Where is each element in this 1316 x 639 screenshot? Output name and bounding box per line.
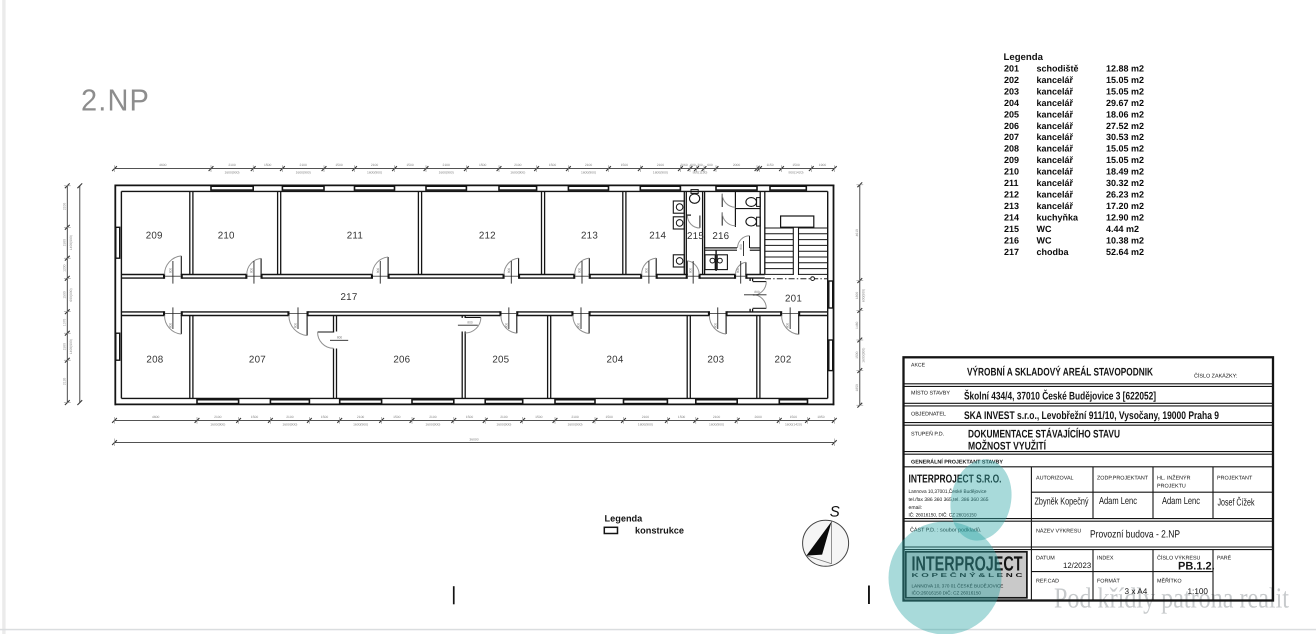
svg-text:1600(900): 1600(900) — [581, 171, 596, 175]
svg-text:2060: 2060 — [680, 163, 688, 167]
svg-text:203: 203 — [707, 354, 724, 365]
svg-text:1460: 1460 — [855, 321, 859, 329]
svg-text:204: 204 — [1004, 98, 1019, 108]
svg-text:Josef Čížek: Josef Čížek — [1218, 497, 1256, 509]
svg-text:1500: 1500 — [790, 415, 798, 419]
svg-text:1500: 1500 — [393, 415, 401, 419]
svg-text:216: 216 — [1004, 236, 1019, 246]
svg-text:1600(900): 1600(900) — [210, 422, 225, 426]
svg-text:WC: WC — [1037, 224, 1052, 234]
svg-text:217: 217 — [341, 292, 358, 303]
svg-text:1500: 1500 — [549, 163, 557, 167]
svg-text:800: 800 — [578, 268, 582, 274]
svg-text:FORMÁT: FORMÁT — [1097, 578, 1120, 585]
svg-text:201: 201 — [785, 294, 802, 305]
svg-text:2.NP: 2.NP — [81, 84, 150, 118]
svg-text:202: 202 — [1004, 75, 1019, 85]
svg-text:1500: 1500 — [264, 163, 272, 167]
svg-text:1850: 1850 — [855, 384, 859, 392]
svg-text:30.53 m2: 30.53 m2 — [1106, 132, 1144, 142]
svg-text:1800: 1800 — [855, 292, 859, 300]
svg-text:kancelář: kancelář — [1037, 178, 1074, 188]
svg-text:800: 800 — [504, 323, 508, 329]
svg-text:SKA INVEST s.r.o., Levobřežní: SKA INVEST s.r.o., Levobřežní 911/10, Vy… — [964, 410, 1219, 422]
svg-text:211: 211 — [1004, 178, 1019, 188]
svg-text:15.05 m2: 15.05 m2 — [1106, 155, 1144, 165]
svg-text:2100: 2100 — [214, 415, 222, 419]
svg-text:214: 214 — [649, 230, 666, 241]
svg-text:4600: 4600 — [152, 415, 160, 419]
svg-text:204: 204 — [607, 354, 624, 365]
svg-text:600(900): 600(900) — [861, 289, 865, 302]
svg-text:1600(900): 1600(900) — [296, 171, 311, 175]
svg-text:205: 205 — [1004, 109, 1019, 119]
svg-text:2100: 2100 — [500, 415, 508, 419]
svg-text:12.88 m2: 12.88 m2 — [1106, 63, 1144, 73]
svg-text:800(1150): 800(1150) — [693, 171, 708, 175]
svg-text:3 x A4: 3 x A4 — [1125, 587, 1148, 596]
svg-text:206: 206 — [1004, 121, 1019, 131]
svg-text:800: 800 — [294, 323, 298, 329]
svg-text:1500: 1500 — [621, 163, 629, 167]
svg-text:WC: WC — [1037, 236, 1052, 246]
svg-text:ČÍSLO ZAKÁZKY:: ČÍSLO ZAKÁZKY: — [1194, 373, 1237, 380]
svg-text:ZODP.PROJEKTANT: ZODP.PROJEKTANT — [1097, 476, 1149, 482]
svg-text:1600(900): 1600(900) — [638, 422, 653, 426]
svg-text:213: 213 — [1004, 201, 1019, 211]
svg-text:1:100: 1:100 — [1188, 587, 1209, 596]
svg-text:207: 207 — [249, 354, 266, 365]
svg-text:PB.1.2.: PB.1.2. — [1178, 561, 1215, 573]
svg-text:800: 800 — [739, 244, 743, 250]
svg-text:kancelář: kancelář — [1037, 190, 1074, 200]
svg-text:2130: 2130 — [62, 378, 66, 386]
svg-text:36000: 36000 — [469, 438, 478, 442]
svg-text:PROJEKTU: PROJEKTU — [1157, 484, 1186, 490]
svg-text:12.90 m2: 12.90 m2 — [1106, 213, 1144, 223]
svg-text:15.05 m2: 15.05 m2 — [1106, 144, 1144, 154]
svg-text:Zbyněk Kopečný: Zbyněk Kopečný — [1035, 497, 1089, 508]
svg-text:Adam Lenc: Adam Lenc — [1099, 496, 1137, 507]
svg-text:1400(900): 1400(900) — [69, 235, 73, 250]
svg-text:1600(900): 1600(900) — [439, 171, 454, 175]
svg-text:202: 202 — [775, 354, 792, 365]
svg-text:1950: 1950 — [817, 415, 825, 419]
svg-text:PROJEKTANT: PROJEKTANT — [1217, 476, 1253, 482]
svg-text:1600(900): 1600(900) — [861, 348, 865, 363]
svg-text:Provozní budova - 2.NP: Provozní budova - 2.NP — [1090, 529, 1180, 541]
svg-text:1600(900): 1600(900) — [425, 422, 440, 426]
svg-text:1600(900): 1600(900) — [510, 171, 525, 175]
svg-text:600: 600 — [690, 163, 696, 167]
svg-text:VÝROBNÍ A SKLADOVÝ AREÁL STAVO: VÝROBNÍ A SKLADOVÝ AREÁL STAVOPODNIK — [967, 366, 1153, 379]
svg-text:1600(900): 1600(900) — [282, 422, 297, 426]
svg-text:Legenda: Legenda — [605, 513, 644, 523]
svg-text:2100: 2100 — [357, 415, 365, 419]
svg-text:Adam Lenc: Adam Lenc — [1162, 496, 1200, 507]
svg-text:52.64 m2: 52.64 m2 — [1106, 247, 1144, 257]
svg-text:INDEX: INDEX — [1097, 556, 1114, 562]
svg-text:kancelář: kancelář — [1037, 201, 1074, 211]
svg-text:1500: 1500 — [62, 239, 66, 247]
svg-text:1200: 1200 — [62, 264, 66, 272]
svg-text:2100: 2100 — [571, 415, 579, 419]
svg-text:1600(900): 1600(900) — [367, 171, 382, 175]
svg-text:800(1420): 800(1420) — [788, 171, 803, 175]
svg-text:2100: 2100 — [657, 163, 665, 167]
svg-text:800: 800 — [507, 268, 511, 274]
svg-text:215: 215 — [687, 231, 704, 242]
svg-text:1370: 1370 — [62, 319, 66, 327]
svg-text:kancelář: kancelář — [1037, 98, 1074, 108]
svg-text:800: 800 — [577, 323, 581, 329]
svg-text:800: 800 — [786, 323, 790, 329]
svg-text:Legenda: Legenda — [1004, 52, 1044, 63]
svg-text:18.49 m2: 18.49 m2 — [1106, 167, 1144, 177]
svg-text:OBJEDNATEL: OBJEDNATEL — [911, 412, 946, 418]
svg-text:4610: 4610 — [855, 229, 859, 237]
svg-text:2100: 2100 — [713, 415, 721, 419]
svg-text:1600(900): 1600(900) — [224, 171, 239, 175]
svg-text:800: 800 — [168, 268, 172, 274]
svg-text:DATUM: DATUM — [1036, 556, 1055, 562]
svg-text:209: 209 — [1004, 155, 1019, 165]
svg-text:DOKUMENTACE STÁVAJÍCÍHO STAVU: DOKUMENTACE STÁVAJÍCÍHO STAVU — [968, 428, 1120, 441]
svg-text:1400(900): 1400(900) — [69, 339, 73, 354]
svg-text:216: 216 — [712, 231, 729, 242]
svg-text:203: 203 — [1004, 86, 1019, 96]
svg-text:1600(900): 1600(900) — [653, 171, 668, 175]
svg-text:2100: 2100 — [371, 163, 379, 167]
svg-text:1600(900): 1600(900) — [709, 422, 724, 426]
svg-text:1500: 1500 — [479, 163, 487, 167]
svg-text:1600(900): 1600(900) — [353, 422, 368, 426]
svg-text:800: 800 — [689, 268, 693, 274]
svg-text:800: 800 — [644, 268, 648, 274]
svg-text:MĚŘÍTKO: MĚŘÍTKO — [1157, 578, 1182, 585]
svg-text:kancelář: kancelář — [1037, 109, 1074, 119]
svg-text:206: 206 — [393, 354, 410, 365]
svg-text:212: 212 — [1004, 190, 1019, 200]
svg-text:Školní 434/4, 37010 České Budě: Školní 434/4, 37010 České Budějovice 3 [… — [964, 390, 1156, 403]
svg-text:kuchyňka: kuchyňka — [1037, 213, 1080, 223]
svg-text:1150: 1150 — [766, 163, 773, 167]
svg-text:17.20 m2: 17.20 m2 — [1106, 201, 1144, 211]
svg-text:kancelář: kancelář — [1037, 86, 1074, 96]
svg-text:208: 208 — [1004, 144, 1019, 154]
svg-text:201: 201 — [1004, 63, 1019, 73]
svg-text:1600(900): 1600(900) — [496, 422, 511, 426]
svg-text:NÁZEV VÝKRESU: NÁZEV VÝKRESU — [1036, 528, 1081, 535]
svg-text:2100: 2100 — [300, 163, 308, 167]
svg-text:2100: 2100 — [429, 415, 437, 419]
svg-text:600(900): 600(900) — [69, 288, 73, 301]
svg-text:2100: 2100 — [286, 415, 294, 419]
svg-text:15.05 m2: 15.05 m2 — [1106, 86, 1144, 96]
svg-text:211: 211 — [347, 230, 363, 241]
svg-text:18.06 m2: 18.06 m2 — [1106, 109, 1144, 119]
svg-text:1500: 1500 — [335, 163, 343, 167]
svg-text:2000: 2000 — [733, 163, 741, 167]
svg-text:STUPEŇ P.D.: STUPEŇ P.D. — [911, 431, 944, 438]
svg-text:AKCE: AKCE — [911, 363, 926, 369]
svg-text:212: 212 — [479, 230, 496, 241]
svg-text:215: 215 — [1004, 224, 1019, 234]
svg-text:26.23 m2: 26.23 m2 — [1106, 190, 1144, 200]
svg-text:800: 800 — [249, 268, 253, 274]
svg-text:1500: 1500 — [466, 415, 474, 419]
svg-text:2100: 2100 — [514, 163, 522, 167]
svg-text:2100: 2100 — [585, 163, 593, 167]
svg-text:kancelář: kancelář — [1037, 155, 1074, 165]
svg-text:HL. INŽENÝR: HL. INŽENÝR — [1157, 475, 1191, 482]
svg-text:1500: 1500 — [792, 163, 800, 167]
svg-text:2100: 2100 — [228, 163, 236, 167]
svg-text:2100: 2100 — [62, 203, 66, 211]
svg-text:213: 213 — [581, 230, 598, 241]
svg-text:kancelář: kancelář — [1037, 144, 1074, 154]
svg-text:1500: 1500 — [406, 163, 414, 167]
svg-text:1500: 1500 — [606, 415, 614, 419]
svg-text:Pod křídly patrona realit: Pod křídly patrona realit — [1054, 583, 1289, 615]
svg-text:konstrukce: konstrukce — [635, 525, 684, 535]
svg-text:1500: 1500 — [535, 415, 543, 419]
svg-text:MÍSTO STAVBY: MÍSTO STAVBY — [911, 390, 950, 397]
svg-text:205: 205 — [492, 354, 509, 365]
svg-text:chodba: chodba — [1037, 247, 1070, 257]
svg-text:email:: email: — [909, 505, 923, 511]
svg-text:800: 800 — [376, 268, 380, 274]
svg-text:800: 800 — [467, 320, 473, 324]
svg-text:schodiště: schodiště — [1037, 63, 1079, 73]
svg-text:800: 800 — [168, 323, 172, 329]
svg-text:214: 214 — [1004, 213, 1019, 223]
svg-text:REF.CAD: REF.CAD — [1036, 579, 1059, 585]
svg-text:30.32 m2: 30.32 m2 — [1106, 178, 1144, 188]
svg-text:208: 208 — [146, 354, 163, 365]
svg-text:217: 217 — [1004, 247, 1019, 257]
svg-text:2100: 2100 — [642, 415, 650, 419]
svg-text:PARÉ: PARÉ — [1217, 555, 1232, 562]
svg-text:1500: 1500 — [251, 415, 259, 419]
svg-text:2100: 2100 — [443, 163, 451, 167]
svg-text:209: 209 — [146, 230, 163, 241]
svg-text:210: 210 — [1004, 167, 1019, 177]
svg-text:kancelář: kancelář — [1037, 75, 1074, 85]
svg-text:1500: 1500 — [62, 291, 66, 299]
svg-text:kancelář: kancelář — [1037, 132, 1074, 142]
svg-text:800: 800 — [754, 290, 760, 294]
svg-text:S: S — [830, 504, 840, 521]
svg-text:1600(1420): 1600(1420) — [785, 422, 802, 426]
svg-text:kancelář: kancelář — [1037, 121, 1074, 131]
svg-text:29.67 m2: 29.67 m2 — [1106, 98, 1144, 108]
svg-text:800: 800 — [337, 336, 343, 340]
svg-text:300: 300 — [697, 163, 703, 167]
svg-text:600: 600 — [707, 163, 713, 167]
svg-text:27.52 m2: 27.52 m2 — [1106, 121, 1144, 131]
svg-text:4600: 4600 — [159, 163, 167, 167]
svg-text:10.38 m2: 10.38 m2 — [1106, 236, 1144, 246]
svg-text:MOŽNOST VYUŽITÍ: MOŽNOST VYUŽITÍ — [968, 440, 1047, 453]
svg-text:1500: 1500 — [678, 415, 686, 419]
svg-text:1600(900): 1600(900) — [567, 422, 582, 426]
svg-text:1500: 1500 — [855, 351, 859, 359]
svg-text:15.05 m2: 15.05 m2 — [1106, 75, 1144, 85]
svg-text:1500: 1500 — [62, 343, 66, 351]
svg-text:1500: 1500 — [321, 415, 329, 419]
svg-text:2000: 2000 — [755, 415, 763, 419]
svg-text:12/2023: 12/2023 — [1063, 561, 1091, 570]
svg-text:kancelář: kancelář — [1037, 167, 1074, 177]
svg-text:4.44 m2: 4.44 m2 — [1106, 224, 1139, 234]
svg-text:800: 800 — [713, 323, 717, 329]
svg-text:AUTORIZOVAL: AUTORIZOVAL — [1036, 476, 1074, 482]
svg-text:207: 207 — [1004, 132, 1019, 142]
svg-text:1900: 1900 — [819, 163, 827, 167]
svg-text:210: 210 — [218, 230, 235, 241]
svg-text:800: 800 — [736, 268, 740, 274]
